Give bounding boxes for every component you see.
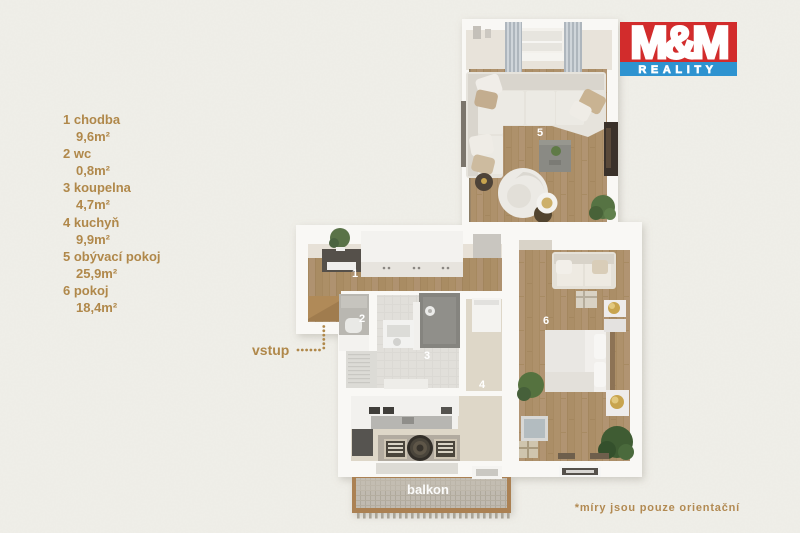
svg-text:6: 6 [543,315,549,327]
svg-text:6 pokoj: 6 pokoj [63,283,109,298]
svg-text:4 kuchyň: 4 kuchyň [63,215,119,230]
svg-text:*míry jsou pouze orientační: *míry jsou pouze orientační [575,502,740,514]
svg-text:balkon: balkon [407,482,449,497]
svg-text:9,9m²: 9,9m² [76,232,111,247]
svg-text:0,8m²: 0,8m² [76,163,111,178]
svg-text:3: 3 [424,350,430,362]
svg-text:5: 5 [537,127,543,139]
svg-text:REALITY: REALITY [638,64,717,76]
svg-text:2: 2 [359,313,365,325]
svg-text:3 koupelna: 3 koupelna [63,180,132,195]
svg-text:M&M: M&M [630,17,727,68]
svg-text:1: 1 [352,268,358,280]
svg-text:4: 4 [479,379,486,391]
svg-text:9,6m²: 9,6m² [76,129,111,144]
svg-text:1 chodba: 1 chodba [63,112,121,127]
svg-text:vstup: vstup [252,342,289,358]
svg-text:4,7m²: 4,7m² [76,197,111,212]
svg-text:18,4m²: 18,4m² [76,300,118,315]
svg-text:25,9m²: 25,9m² [76,266,118,281]
svg-text:5 obývací pokoj: 5 obývací pokoj [63,249,161,264]
svg-text:2 wc: 2 wc [63,146,91,161]
